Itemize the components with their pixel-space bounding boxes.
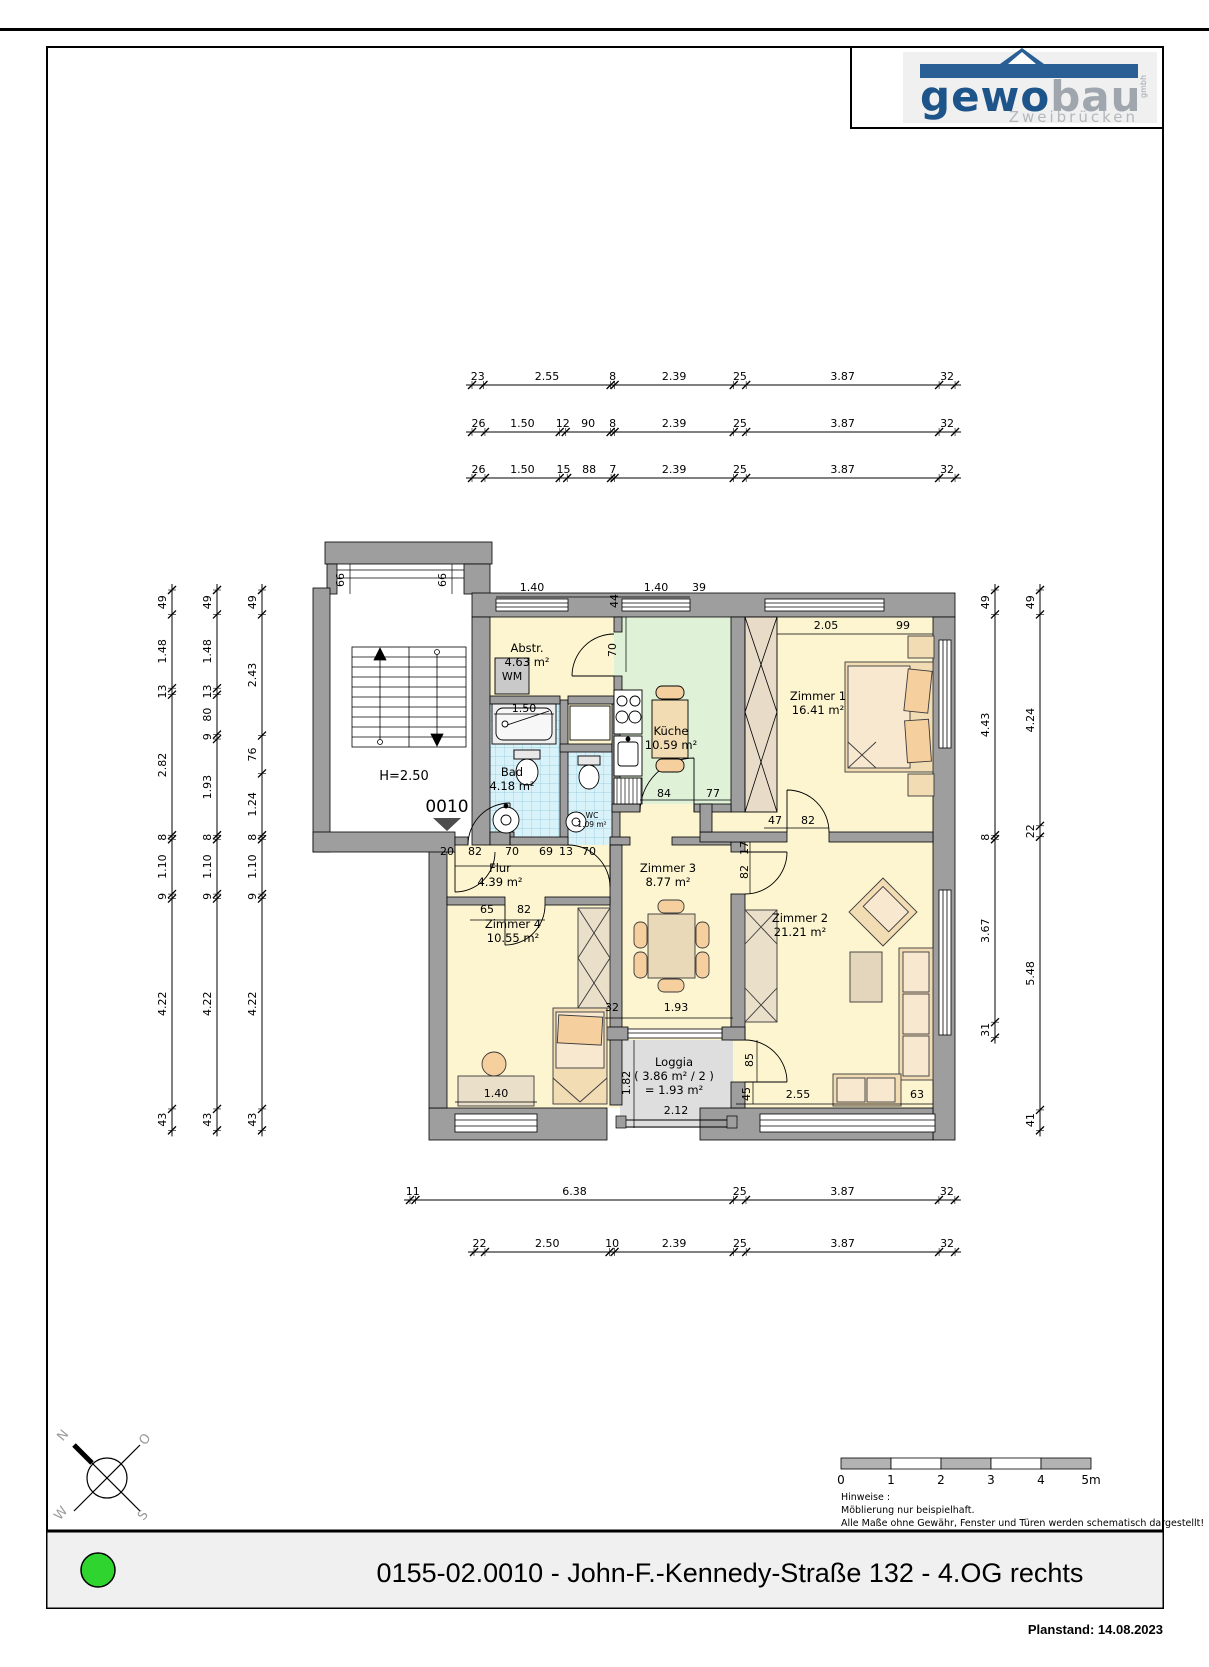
svg-text:WM: WM: [502, 670, 522, 683]
dim-label: 2.50: [535, 1237, 560, 1250]
footer: 0155-02.0010 - John-F.-Kennedy-Straße 13…: [47, 1531, 1163, 1637]
dim-label: 1.24: [246, 792, 259, 817]
notes-line-2: Alle Maße ohne Gewähr, Fenster und Türen…: [841, 1518, 1204, 1529]
apartment-plan: WM: [313, 542, 955, 1140]
canopy: [325, 542, 492, 594]
dim-label: 4.22: [246, 992, 259, 1017]
dim-label: 9: [246, 893, 259, 900]
interior-dim-label: 1.50: [512, 702, 537, 715]
interior-dim-label: 32: [605, 1001, 619, 1014]
dim-label: 8: [979, 834, 992, 841]
dim-label: 8: [246, 834, 259, 841]
room-name: Abstr.: [511, 641, 544, 655]
dim-chain: 261.50129082.39253.8732: [466, 417, 961, 436]
dim-label: 49: [1024, 595, 1037, 609]
room-area: 21.21 m²: [774, 925, 826, 939]
interior-dim-label: 77: [706, 787, 720, 800]
room-area: 1.09 m²: [577, 820, 606, 829]
dim-label: 43: [201, 1113, 214, 1127]
dim-label: 11: [406, 1185, 420, 1198]
dim-label: 8: [201, 834, 214, 841]
room-label: Zimmer 410.55 m²: [485, 917, 541, 945]
scale-bar: 012345m: [837, 1458, 1100, 1487]
compass-w: W: [51, 1504, 71, 1524]
dim-label: 1.48: [201, 639, 214, 664]
stairs: [352, 647, 466, 747]
dim-label: 10: [605, 1237, 619, 1250]
dim-label: 5.48: [1024, 961, 1037, 986]
entrance-arrow-icon: [433, 818, 461, 831]
room-name: Küche: [654, 724, 689, 738]
dim-label: 43: [156, 1113, 169, 1127]
dim-label: 25: [733, 417, 747, 430]
interior-dim-label: 84: [657, 787, 671, 800]
dim-label: 32: [940, 1237, 954, 1250]
dim-label: 13: [201, 684, 214, 698]
ceiling-height-label: H=2.50: [379, 769, 429, 784]
dim-label: 2.39: [662, 370, 687, 383]
dim-label: 1.10: [246, 854, 259, 879]
dim-label: 3.87: [830, 463, 855, 476]
dim-label: 25: [733, 1237, 747, 1250]
interior-dim-label: 70: [582, 845, 596, 858]
logo-city: Zweibrücken: [1009, 108, 1138, 126]
interior-dim-label: 1.40: [520, 581, 545, 594]
dim-label: 3.67: [979, 918, 992, 943]
room-area: 10.55 m²: [487, 931, 539, 945]
interior-dim-label: 99: [896, 619, 910, 632]
dim-label: 2.43: [246, 663, 259, 688]
dim-chain: 232.5582.39253.8732: [466, 370, 961, 389]
dim-label: 6.38: [562, 1185, 587, 1198]
room-area: ( 3.86 m² / 2 ): [634, 1069, 714, 1083]
dim-label: 8: [156, 834, 169, 841]
notes: Hinweise : Möblierung nur beispielhaft. …: [841, 1492, 1204, 1529]
interior-dim-label: 17: [738, 841, 751, 855]
interior-dim-label: 65: [480, 903, 494, 916]
interior-dim-label: 44: [608, 594, 621, 608]
logo: gewobau gmbh Zweibrücken: [851, 47, 1163, 128]
interior-dim-label: 2.05: [814, 619, 839, 632]
room-area: 4.39 m²: [477, 875, 522, 889]
unit-number-label: 0010: [425, 797, 468, 817]
scale-label: 4: [1037, 1473, 1045, 1487]
dim-label: 43: [246, 1113, 259, 1127]
dim-label: 76: [246, 748, 259, 762]
room-name: Zimmer 1: [790, 689, 846, 703]
dim-label: 90: [581, 417, 595, 430]
interior-dim-label: 69: [539, 845, 553, 858]
room-area: 4.63 m²: [504, 655, 549, 669]
dim-label: 4.24: [1024, 708, 1037, 733]
floorplan-sheet: gewobau gmbh Zweibrücken: [0, 0, 1209, 1663]
interior-dim-label: 1.40: [484, 1087, 509, 1100]
dim-label: 22: [472, 1237, 486, 1250]
dim-label: 25: [733, 1185, 747, 1198]
dim-label: 49: [156, 595, 169, 609]
interior-dim-label: 1.82: [620, 1071, 633, 1096]
dim-label: 1.10: [201, 854, 214, 879]
room-area: 8.77 m²: [645, 875, 690, 889]
dim-chain: 116.38253.8732: [404, 1185, 961, 1204]
compass-s: S: [135, 1508, 152, 1524]
dim-label: 80: [201, 708, 214, 722]
dim-label: 8: [609, 370, 616, 383]
compass-icon: N O S W: [51, 1427, 154, 1524]
interior-dim-label: 2.55: [786, 1088, 811, 1101]
dim-label: 8: [609, 417, 616, 430]
room-name: Zimmer 2: [772, 911, 828, 925]
dim-label: 2.39: [662, 417, 687, 430]
dim-label: 32: [940, 417, 954, 430]
interior-dim-label: 66: [334, 573, 347, 587]
dim-label: 1.10: [156, 854, 169, 879]
dim-label: 25: [733, 370, 747, 383]
interior-dim-label: 2.12: [664, 1104, 689, 1117]
dim-label: 49: [246, 595, 259, 609]
dim-label: 3.87: [830, 1237, 855, 1250]
dim-label: 32: [940, 1185, 954, 1198]
interior-dim-label: 66: [436, 573, 449, 587]
dim-label: 3.87: [830, 417, 855, 430]
room-name: Flur: [489, 861, 511, 875]
room-name: WC: [586, 811, 599, 820]
dim-label: 15: [556, 463, 570, 476]
dim-label: 1.93: [201, 775, 214, 800]
dim-chain: 491.48138091.9381.1094.2243: [201, 584, 221, 1136]
dim-chain: 222.50102.39253.8732: [468, 1237, 961, 1256]
interior-dim-label: 45: [740, 1087, 753, 1101]
interior-dim-label: 47: [768, 814, 782, 827]
interior-dim-label: 70: [505, 845, 519, 858]
scale-label: 2: [937, 1473, 945, 1487]
room-label: Zimmer 38.77 m²: [640, 861, 696, 889]
shaft: [745, 617, 777, 812]
compass-n: N: [54, 1427, 72, 1444]
logo-gmbh: gmbh: [1139, 75, 1148, 98]
dim-label: 2.55: [535, 370, 560, 383]
interior-dim-label: 70: [606, 643, 619, 657]
dim-label: 9: [156, 893, 169, 900]
room-area-2: = 1.93 m²: [645, 1083, 703, 1097]
planstand-label: Planstand: 14.08.2023: [1028, 1622, 1163, 1637]
room-label: Zimmer 116.41 m²: [790, 689, 846, 717]
interior-dim-label: 63: [910, 1088, 924, 1101]
room-name: Loggia: [655, 1055, 693, 1069]
dim-chain: 491.48132.8281.1094.2243: [156, 584, 176, 1136]
dim-label: 1.48: [156, 639, 169, 664]
notes-heading: Hinweise :: [841, 1492, 890, 1503]
dim-label: 25: [733, 463, 747, 476]
dim-label: 9: [201, 893, 214, 900]
room-name: Zimmer 3: [640, 861, 696, 875]
room-label: Abstr.4.63 m²: [504, 641, 549, 669]
dim-label: 1.50: [510, 463, 535, 476]
interior-dim-label: 82: [738, 865, 751, 879]
dim-label: 3.87: [830, 1185, 855, 1198]
dim-chain: 494.24225.4841: [1024, 584, 1044, 1136]
interior-dim-label: 82: [517, 903, 531, 916]
dim-chain: 492.43761.2481.1094.2243: [246, 584, 266, 1136]
dim-label: 22: [1024, 824, 1037, 838]
scale-label: 0: [837, 1473, 845, 1487]
notes-line-1: Möblierung nur beispielhaft.: [841, 1505, 975, 1516]
dim-label: 31: [979, 1023, 992, 1037]
dim-label: 4.22: [201, 992, 214, 1017]
dim-label: 13: [156, 684, 169, 698]
dim-label: 88: [582, 463, 596, 476]
dim-label: 49: [201, 595, 214, 609]
dim-label: 2.39: [662, 1237, 687, 1250]
dim-label: 1.50: [510, 417, 535, 430]
dim-label: 26: [471, 417, 485, 430]
dim-label: 12: [556, 417, 570, 430]
dim-label: 7: [609, 463, 616, 476]
dim-chain: 494.4383.6731: [979, 584, 999, 1044]
room-area: 10.59 m²: [645, 738, 697, 752]
scale-label: 3: [987, 1473, 995, 1487]
dim-label: 32: [940, 370, 954, 383]
interior-dim-label: 1.93: [664, 1001, 689, 1014]
room-area: 16.41 m²: [792, 703, 844, 717]
room-name: Zimmer 4: [485, 917, 541, 931]
dim-label: 23: [471, 370, 485, 383]
interior-dim-label: 20: [440, 845, 454, 858]
dim-label: 9: [201, 733, 214, 740]
room-area: 4.18 m²: [489, 779, 534, 793]
interior-dim-label: 13: [559, 845, 573, 858]
interior-dim-label: 85: [743, 1053, 756, 1067]
dim-label: 4.22: [156, 992, 169, 1017]
sheet-title: 0155-02.0010 - John-F.-Kennedy-Straße 13…: [377, 1558, 1084, 1588]
dim-label: 49: [979, 595, 992, 609]
interior-dim-label: 82: [468, 845, 482, 858]
dim-label: 3.87: [830, 370, 855, 383]
interior-dim-label: 82: [801, 814, 815, 827]
status-dot: [81, 1553, 115, 1587]
scale-label: 5m: [1081, 1473, 1100, 1487]
scale-label: 1: [887, 1473, 895, 1487]
floorplan-drawing: gewobau gmbh Zweibrücken: [0, 0, 1209, 1663]
interior-dim-label: 39: [692, 581, 706, 594]
dim-label: 26: [471, 463, 485, 476]
dim-label: 41: [1024, 1113, 1037, 1127]
dim-label: 4.43: [979, 713, 992, 738]
room-name: Bad: [501, 765, 523, 779]
dim-label: 32: [940, 463, 954, 476]
room-label: Zimmer 221.21 m²: [772, 911, 828, 939]
dim-label: 2.82: [156, 753, 169, 778]
dim-label: 2.39: [662, 463, 687, 476]
interior-dim-label: 1.40: [644, 581, 669, 594]
dim-chain: 261.50158872.39253.8732: [466, 463, 961, 482]
